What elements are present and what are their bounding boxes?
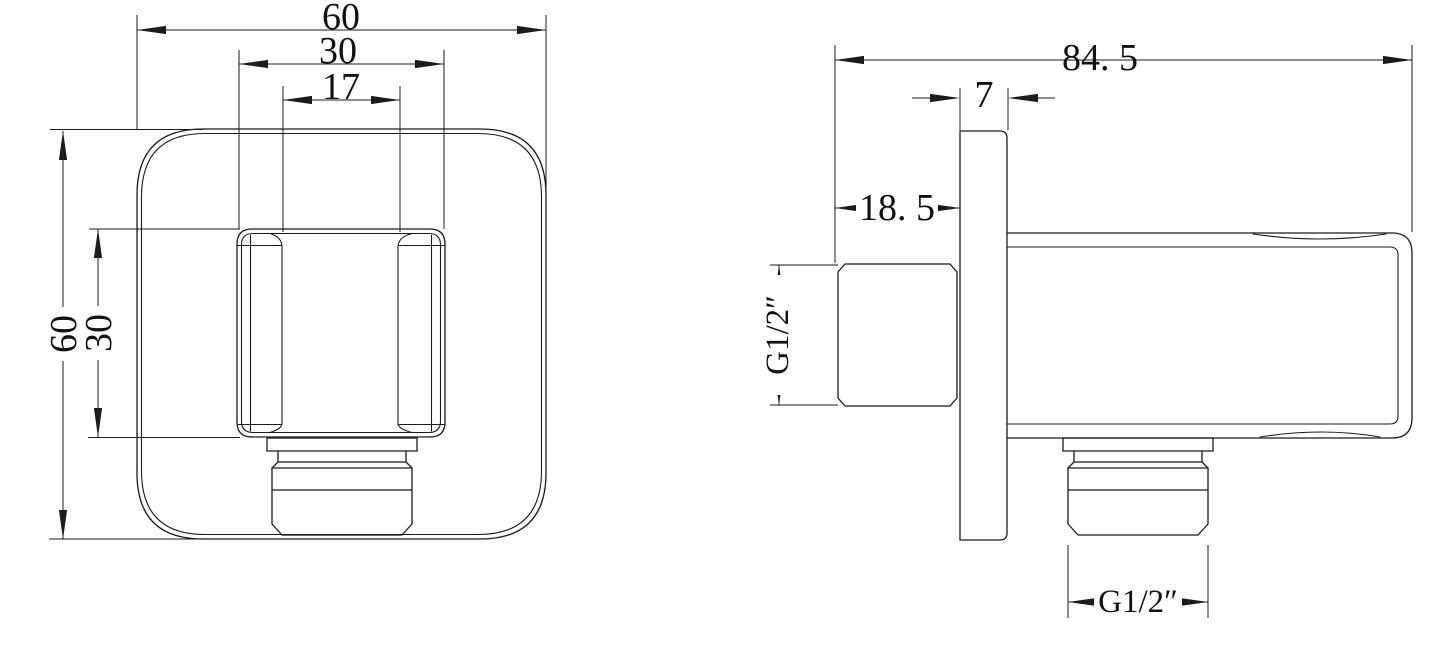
front-dimensions: 60 30 17 60 (43, 0, 546, 539)
outlet-neck-side (1068, 451, 1208, 468)
dim-label-side-inlet-offset: 18. 5 (859, 187, 935, 229)
dim-label-front-width-inner: 17 (322, 66, 360, 108)
side-dimensions: 84. 5 7 18. 5 G1/2″ (760, 37, 1412, 620)
outlet-barrel-front (272, 468, 412, 535)
outlet-flange-side (1063, 438, 1213, 451)
wall-plate-outline-side (960, 131, 1007, 540)
square-knob-outline (237, 229, 445, 437)
dim-front-width-inner: 17 (283, 66, 400, 232)
technical-drawing: 60 30 17 60 (0, 0, 1438, 645)
body-inner-contour-side (1007, 247, 1398, 424)
drawing-canvas: 60 30 17 60 (0, 0, 1438, 645)
dim-label-side-inlet-thread: G1/2″ (760, 295, 796, 375)
inlet-thread-outline (838, 264, 957, 406)
dim-label-side-length-overall: 84. 5 (1062, 37, 1138, 79)
dim-side-plate-thickness: 7 (912, 74, 1055, 130)
front-view (137, 129, 546, 539)
dim-label-front-height-mid: 30 (78, 314, 120, 352)
square-knob-face-lines (270, 234, 412, 433)
dim-front-height-mid: 30 (78, 229, 240, 438)
dim-side-inlet-offset: 18. 5 (835, 187, 960, 229)
dim-front-height-outer: 60 (43, 130, 203, 540)
dim-side-inlet-thread: G1/2″ (760, 265, 838, 405)
body-outline-side (1007, 233, 1412, 438)
dim-label-side-plate-thickness: 7 (975, 74, 994, 116)
dim-side-outlet-thread: G1/2″ (1068, 545, 1208, 620)
square-knob-bevel-lines (237, 235, 445, 431)
wall-plate-inner-contour-front (142, 134, 542, 535)
dim-side-length-overall: 84. 5 (835, 37, 1412, 263)
square-knob-inner-contour (242, 234, 441, 433)
wall-plate-outline-front (137, 129, 546, 539)
outlet-neck-front (272, 451, 412, 468)
body-surface-highlight-lines (1253, 234, 1386, 437)
outlet-flange-front (267, 438, 417, 451)
dim-label-side-outlet-thread: G1/2″ (1098, 584, 1178, 620)
outlet-barrel-side (1068, 468, 1208, 535)
